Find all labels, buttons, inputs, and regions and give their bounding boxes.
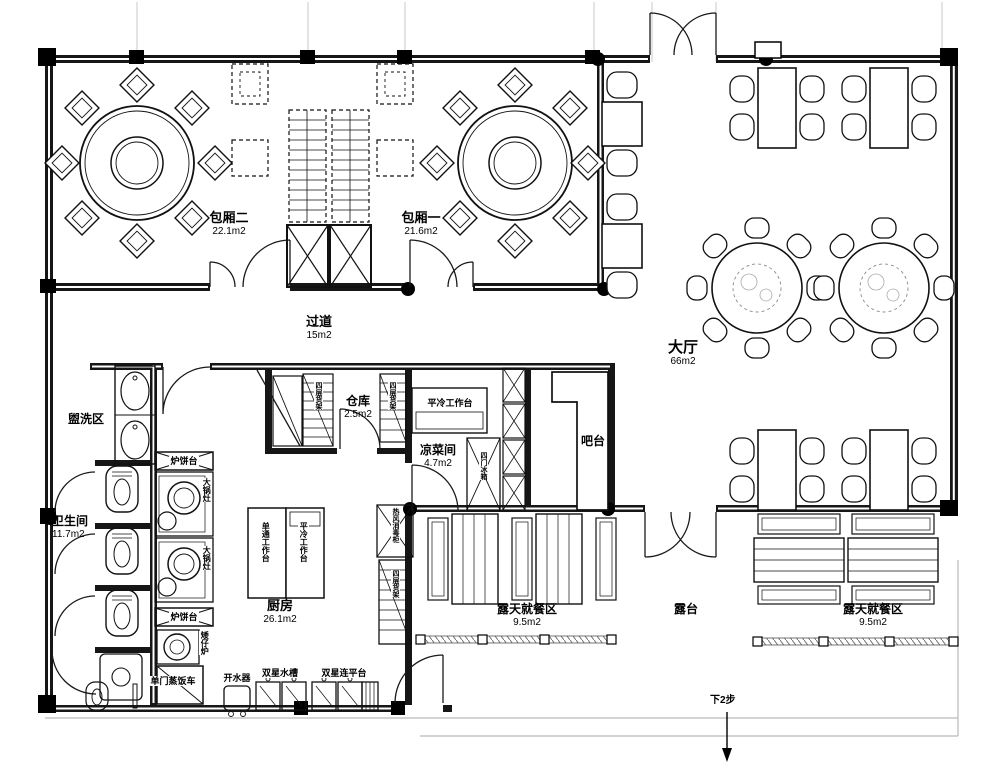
steps-down-label: 下2步 [710,695,736,707]
window-column [755,42,781,58]
equip-label-double-sink-platform: 双星连平台 [308,668,380,678]
room-label-weishengjian: 卫生间11.7m2 [52,515,108,540]
room-label-liangcaijian: 凉菜间4.7m2 [407,444,469,469]
equip-label-pancake-stove-2: 炉饼台 [155,612,213,622]
equip-label-double-sink: 双星水槽 [252,668,308,678]
terrace-dining-2 [754,514,938,604]
room-label-terrace-dining-1: 露天就餐区9.5m2 [477,603,577,628]
terrace-railings [416,635,958,646]
hall-round-table-2 [814,218,954,358]
room-label-guodao: 过道15m2 [284,315,354,341]
hall-tables-2seat [602,72,642,298]
equip-label-pancake-stove-1: 炉饼台 [155,456,213,466]
equip-label-worktable-single: 单通工作台 [261,522,270,562]
equip-label-sterilizer: 热风消毒柜 [391,508,399,543]
steps-down-arrow [722,712,732,762]
floorplan-linework [0,0,1000,769]
room-label-baoxiang2: 包厢二22.1m2 [194,211,264,237]
room-label-dating: 大厅66m2 [648,339,718,368]
equip-label-4door-fridge: 四门冰箱 [479,452,487,480]
equip-label-worktable-cold-colddish: 平冷工作台 [414,398,486,408]
room-label-baoxiang1: 包厢一21.6m2 [386,211,456,237]
partition-cabinets [232,64,413,287]
equip-label-low-stove: 矮仔炉 [200,631,209,655]
equip-label-shelf-2: 四层货架 [388,382,396,410]
room-label-cangku: 仓库2.5m2 [323,395,393,420]
equip-label-shelf-3: 四层货架 [391,570,399,598]
hall-round-table-1 [687,218,827,358]
floor-plan: 包厢二22.1m2 包厢一21.6m2 过道15m2 大厅66m2 盥洗区 卫生… [0,0,1000,769]
equip-label-bigpot-stove-2: 大锅灶 [202,546,211,570]
room-label-terrace-dining-2: 露天就餐区9.5m2 [823,603,923,628]
room-label-chufang: 厨房26.1m2 [245,599,315,625]
cold-dish-room-equipment [412,368,525,510]
equip-label-bigpot-stove-1: 大锅灶 [202,478,211,502]
equip-label-shelf-1: 四层货架 [314,382,322,410]
room-label-guanxiqu: 盥洗区 [58,413,114,427]
room-label-batai: 吧台 [579,435,607,449]
grid-lines [137,2,942,62]
equip-label-steam-cart: 单门蒸饭车 [138,676,208,686]
washbasin-counter [115,366,155,464]
room-label-lutai: 露台 [664,603,708,617]
terrace-dining-1 [428,514,616,604]
equip-label-worktable-cold-kitchen: 平冷工作台 [299,522,308,562]
